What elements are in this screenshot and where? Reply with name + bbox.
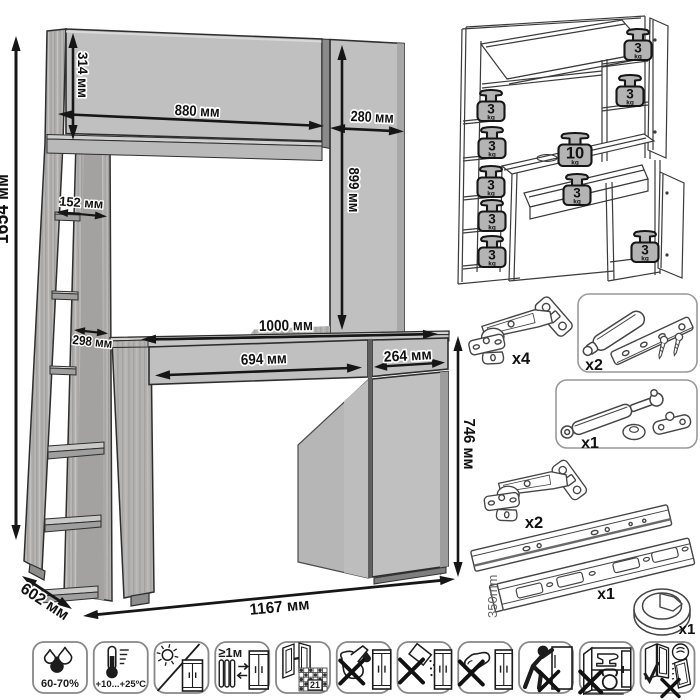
svg-text:+10...+25ºC: +10...+25ºC bbox=[96, 679, 147, 690]
svg-text:kg: kg bbox=[573, 199, 581, 206]
svg-text:746 мм: 746 мм bbox=[460, 419, 477, 470]
svg-text:kg: kg bbox=[641, 256, 649, 263]
svg-text:≥1м: ≥1м bbox=[218, 645, 242, 660]
svg-text:kg: kg bbox=[626, 100, 634, 107]
svg-text:x2: x2 bbox=[525, 514, 543, 532]
svg-text:kg: kg bbox=[634, 54, 642, 61]
svg-text:1654 мм: 1654 мм bbox=[0, 174, 13, 244]
svg-text:kg: kg bbox=[488, 152, 496, 159]
svg-text:x1: x1 bbox=[581, 435, 599, 452]
svg-text:kg: kg bbox=[571, 160, 579, 167]
svg-text:60-70%: 60-70% bbox=[41, 678, 79, 690]
svg-text:x1: x1 bbox=[679, 621, 696, 638]
svg-text:x4: x4 bbox=[512, 350, 531, 368]
svg-text:kg: kg bbox=[488, 225, 496, 232]
svg-text:kg: kg bbox=[487, 191, 495, 198]
svg-text:694 мм: 694 мм bbox=[241, 350, 288, 369]
svg-text:880 мм: 880 мм bbox=[174, 102, 220, 121]
svg-text:264 мм: 264 мм bbox=[383, 346, 432, 365]
svg-text:314 мм: 314 мм bbox=[75, 52, 91, 98]
svg-text:350mm: 350mm bbox=[485, 575, 500, 618]
svg-text:152 мм: 152 мм bbox=[59, 193, 104, 211]
svg-text:899 мм: 899 мм bbox=[345, 168, 362, 213]
svg-text:280 мм: 280 мм bbox=[350, 108, 394, 127]
svg-text:kg: kg bbox=[488, 261, 496, 268]
svg-text:1000 мм: 1000 мм bbox=[259, 317, 313, 335]
svg-text:x2: x2 bbox=[585, 357, 603, 374]
svg-text:kg: kg bbox=[487, 115, 495, 122]
svg-text:x1: x1 bbox=[597, 586, 615, 603]
svg-text:21: 21 bbox=[310, 680, 320, 690]
